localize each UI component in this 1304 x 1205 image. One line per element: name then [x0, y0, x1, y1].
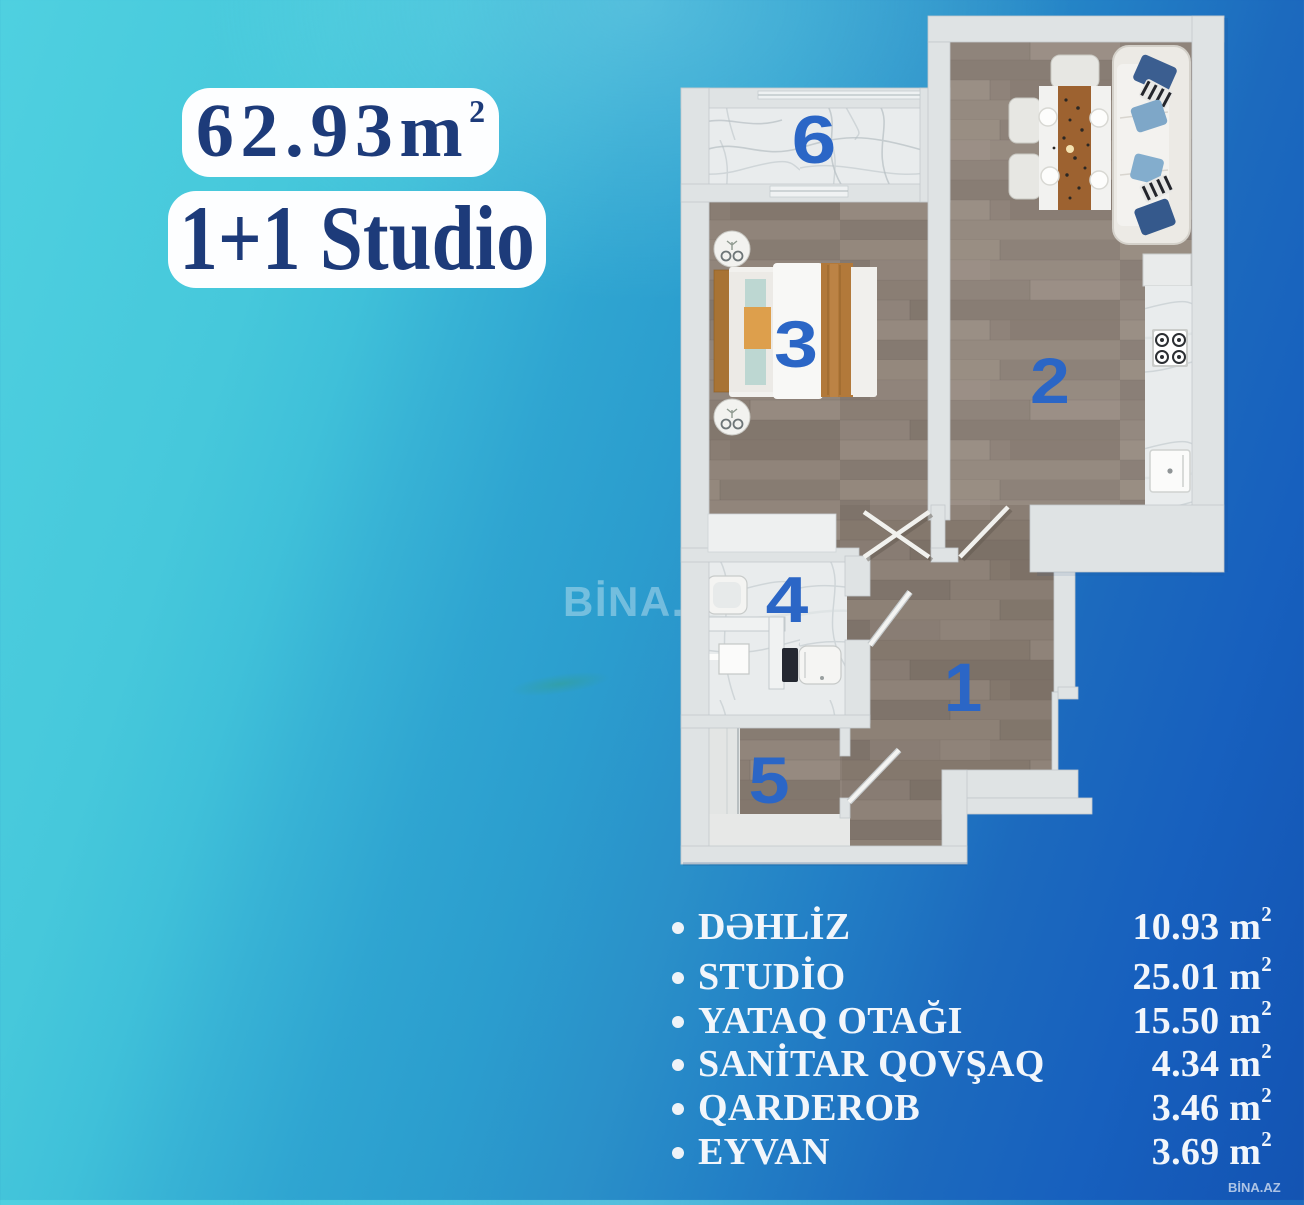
svg-text:4: 4: [766, 564, 809, 636]
svg-text:1: 1: [944, 649, 982, 726]
svg-text:5: 5: [748, 744, 789, 817]
svg-text:2: 2: [1030, 346, 1070, 418]
svg-text:3: 3: [774, 308, 818, 381]
svg-text:6: 6: [792, 102, 837, 178]
